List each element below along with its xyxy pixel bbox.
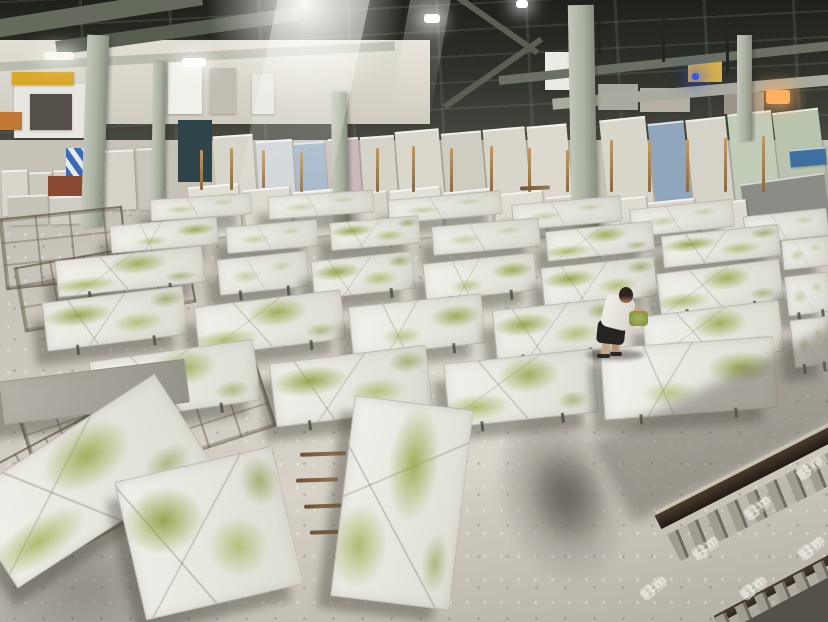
door-gray — [210, 68, 236, 114]
worker-sandal — [610, 352, 622, 356]
fluorescent-lamp — [516, 0, 528, 8]
wooden-stake — [762, 136, 765, 192]
worker-sandal — [597, 354, 610, 358]
marble-slab — [330, 395, 474, 610]
machine-orange — [0, 112, 22, 130]
roof-beam — [726, 22, 729, 74]
wooden-stake — [686, 140, 689, 192]
wooden-stake — [200, 150, 203, 190]
stand-leg — [480, 421, 484, 431]
crane-beam-yellow — [12, 72, 74, 85]
standing-slab — [789, 146, 826, 167]
marble-slab — [784, 271, 828, 316]
wooden-stake — [230, 148, 233, 190]
wooden-stake — [490, 146, 493, 192]
stand-leg — [219, 403, 223, 413]
stand-leg — [309, 340, 313, 350]
wooden-stake — [648, 142, 651, 192]
stand-leg — [76, 345, 80, 355]
stand-leg — [561, 413, 565, 423]
roof-beam — [598, 6, 601, 54]
standing-slab — [103, 149, 136, 210]
machine-opening — [30, 94, 72, 130]
wooden-stake — [450, 148, 453, 192]
red-brown-machine — [48, 176, 84, 196]
stone-factory-photo: stm石猫stm石猫stm石猫stm石猫stm石猫stm石猫 — [0, 0, 828, 622]
stand-leg — [390, 288, 394, 298]
stand-leg — [308, 420, 312, 430]
blue-led — [692, 73, 699, 80]
roof-beam — [662, 14, 665, 62]
marble-slab — [781, 236, 828, 271]
worker-head — [619, 287, 633, 303]
warm-lamp — [766, 90, 790, 104]
fluorescent-lamp — [44, 52, 74, 60]
wooden-stake — [724, 138, 727, 192]
wooden-stake — [610, 140, 613, 192]
fluorescent-lamp — [182, 58, 206, 67]
stand-leg — [152, 335, 156, 345]
wooden-stake — [566, 150, 569, 192]
door-bright — [168, 62, 202, 114]
teal-cabinet — [178, 120, 212, 182]
wooden-stake — [376, 148, 379, 192]
worker-held-stone — [629, 311, 648, 326]
steel-column — [737, 35, 752, 141]
stand-leg — [510, 290, 514, 300]
stand-leg — [452, 343, 456, 353]
